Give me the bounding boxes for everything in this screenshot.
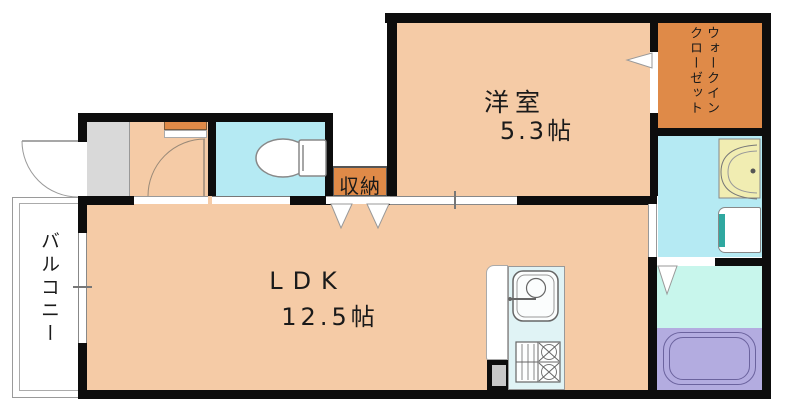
wic-door-triangle-icon: [627, 53, 652, 68]
floor-plan: 洋室 5.3帖 LDK 12.5帖 収納 バルコニー ウォークイン クローゼット: [0, 0, 800, 409]
room-swing-door-icon: [148, 139, 205, 196]
washbasin-icon: [719, 139, 760, 199]
fixtures-layer: [0, 0, 800, 409]
walk-in-closet-label-line2: クローゼット: [686, 26, 703, 126]
ldk-size: 12.5帖: [240, 297, 420, 332]
walk-in-closet-label-line1: ウォークイン: [703, 26, 720, 126]
western-room-size: 5.3帖: [447, 111, 627, 146]
gas-stove-icon: [516, 342, 560, 382]
toilet-icon: [256, 139, 326, 177]
entry-swing-door-icon: [22, 141, 78, 197]
folding-door-triangles-icon: [331, 204, 389, 228]
storage-label: 収納: [333, 170, 387, 199]
kitchen-sink-icon: [508, 271, 558, 321]
walk-in-closet-label: ウォークイン クローゼット: [686, 26, 720, 126]
ldk-name: LDK: [238, 267, 378, 295]
bathroom-door-triangle-icon: [658, 266, 677, 294]
balcony-label: バルコニー: [36, 231, 63, 361]
